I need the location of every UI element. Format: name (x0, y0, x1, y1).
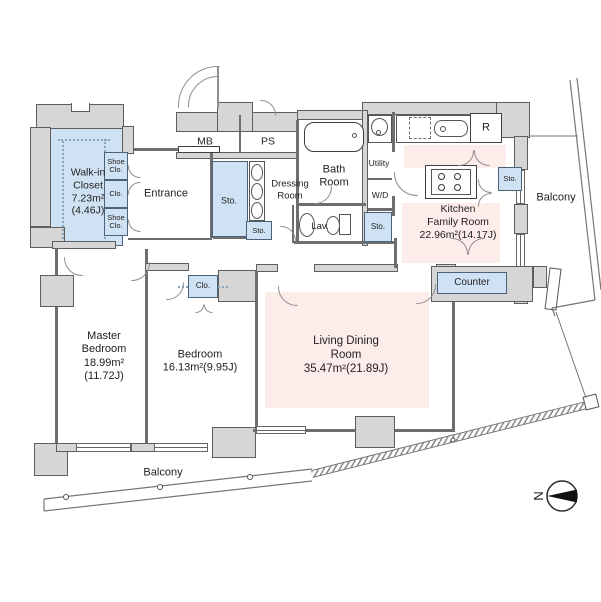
linen-cabinet-shelf (251, 164, 263, 181)
room-name: Bedroom (178, 349, 223, 361)
shoe-closet-top: Shoe Clo. (104, 152, 128, 180)
door-arc (150, 266, 184, 300)
room-name: Closet (73, 179, 103, 191)
wall (256, 264, 278, 272)
closet-entry-label: Clo. (109, 190, 122, 198)
wall-pillar (40, 275, 74, 307)
utility-sink-drain (376, 130, 381, 135)
entrance-label: Entrance (144, 187, 188, 200)
master-bedroom-label: Master Bedroom 18.99m² (11.72J) (82, 330, 127, 384)
balcony-right-label: Balcony (536, 191, 575, 204)
living-dining-label: Living Dining Room 35.47m²(21.89J) (304, 334, 388, 376)
compass-circle (547, 481, 577, 511)
wall (52, 241, 116, 249)
room-name: Kitchen (440, 203, 475, 215)
railing-line (570, 80, 595, 300)
room-name: PS (261, 136, 275, 148)
room-name: Room (331, 349, 362, 361)
boundary-end-post (583, 394, 600, 411)
stove-burner (438, 184, 445, 191)
refrigerator-label: R (482, 121, 490, 134)
room-name: Entrance (144, 187, 188, 199)
room-name: Living Dining (313, 335, 379, 347)
wall (368, 208, 394, 211)
room-name: Sto. (221, 196, 237, 206)
wall (296, 203, 366, 206)
room-tatami: (4.46J) (72, 205, 105, 217)
wall-notch (71, 103, 90, 112)
compass-arrow (548, 490, 578, 503)
railing-post (544, 267, 561, 310)
wall (30, 127, 51, 227)
counter-label: Counter (454, 278, 490, 289)
storage-lavatory: Sto. (364, 212, 392, 242)
wall (255, 271, 258, 431)
lavatory-label: Lav. (311, 221, 328, 233)
stove-burner (454, 173, 461, 180)
kitchen-sink-drain (440, 126, 446, 132)
kitchen-label: Kitchen Family Room 22.96m²(14.17J) (419, 203, 496, 241)
railing-bracket (552, 300, 595, 316)
utility-label: Utility (369, 158, 390, 168)
room-area: 18.99m² (84, 357, 124, 369)
wall (131, 443, 155, 452)
room-name: Walk-in (71, 166, 106, 178)
window (76, 443, 131, 452)
room-name: Room (319, 177, 348, 189)
railing-post (248, 475, 253, 480)
wall (145, 263, 189, 271)
counter: Counter (437, 272, 507, 294)
wall (122, 126, 134, 154)
room-name: Master (87, 330, 121, 342)
shoe-closet-bottom: Shoe Clo. (104, 208, 128, 236)
closet-rod (218, 286, 228, 288)
room-name: W/D (372, 190, 389, 200)
walk-in-closet-label: Walk-in Closet 7.23m² (4.46J) (71, 166, 106, 217)
bath-room-label: Bath Room (319, 164, 348, 191)
door-arc (128, 154, 152, 178)
storage-lavatory-label: Sto. (371, 223, 385, 231)
wall (314, 264, 398, 272)
room-name: Dressing (271, 178, 309, 189)
wd-label: W/D (372, 190, 389, 200)
kitchen-hob-dashed (409, 117, 431, 139)
wall-pillar (355, 416, 395, 448)
stove-burner (454, 184, 461, 191)
wall (217, 102, 253, 132)
room-name: Family Room (427, 216, 489, 228)
railing-post (64, 495, 69, 500)
room-name: MB (197, 136, 213, 148)
floor-plan: Shoe Clo. Clo. Shoe Clo. Sto. Sto. Sto. … (0, 0, 601, 602)
wall (514, 204, 528, 234)
closet-bedroom-label: Clo. (196, 282, 210, 290)
shoe-closet-top-label: Shoe Clo. (105, 158, 127, 174)
wall (128, 238, 212, 240)
door-leaf (217, 66, 219, 108)
stove-burner (438, 173, 445, 180)
room-name: Lav. (311, 221, 328, 232)
room-area: 35.47m²(21.89J) (304, 363, 388, 375)
linen-cabinet-shelf (251, 183, 263, 200)
room-name: R (482, 121, 490, 133)
door-arc (128, 208, 152, 232)
balcony-boundary-hatch (311, 400, 590, 477)
bathtub-drain (352, 133, 357, 138)
toilet-tank (339, 214, 351, 235)
balcony-bottom-label: Balcony (143, 466, 182, 479)
room-name: Utility (369, 158, 390, 168)
wall (533, 266, 547, 288)
wall-pillar (212, 427, 256, 458)
wall (452, 297, 455, 432)
window (154, 443, 208, 452)
storage-hall-small: Sto. (246, 221, 272, 240)
wall (239, 115, 241, 153)
room-name: Room (277, 190, 302, 201)
boundary-line (556, 312, 586, 398)
bedroom-label: Bedroom 16.13m²(9.95J) (163, 349, 238, 376)
wall (392, 196, 395, 216)
storage-hall-small-label: Sto. (252, 227, 265, 235)
door-arc (188, 297, 204, 313)
shoe-closet-bottom-label: Shoe Clo. (105, 214, 127, 230)
ps-label: PS (261, 136, 275, 149)
room-name: Bath (323, 164, 346, 176)
closet-entry: Clo. (104, 180, 128, 208)
mb-label: MB (197, 136, 213, 149)
wall (514, 136, 528, 170)
wall (134, 148, 178, 151)
closet-bedroom: Clo. (188, 275, 218, 298)
wall (392, 112, 395, 152)
room-name: Balcony (143, 466, 182, 478)
wall (56, 443, 77, 452)
room-tatami: (11.72J) (84, 370, 124, 382)
room-name: Bedroom (82, 344, 127, 356)
window (516, 234, 525, 268)
stove (431, 169, 471, 195)
railing-line (577, 78, 601, 290)
room-area: 7.23m² (72, 192, 105, 204)
dressing-room-label: Dressing Room (271, 178, 309, 201)
storage-hall-label: Sto. (221, 196, 237, 207)
closet-rod (58, 139, 110, 141)
linen-cabinet-shelf (251, 202, 263, 219)
window (256, 426, 306, 434)
closet-rod (62, 141, 64, 239)
storage-kitchen: Sto. (498, 167, 522, 191)
wall (145, 249, 148, 443)
storage-kitchen-label: Sto. (503, 175, 516, 183)
railing-post (158, 485, 163, 490)
compass-north-label: N (531, 491, 546, 500)
wall (368, 178, 392, 180)
wall (176, 152, 298, 159)
room-area: 16.13m²(9.95J) (163, 362, 238, 374)
wall (394, 238, 397, 268)
room-area: 22.96m²(14.17J) (419, 228, 496, 240)
railing-line (44, 481, 312, 511)
room-name: Balcony (536, 191, 575, 203)
